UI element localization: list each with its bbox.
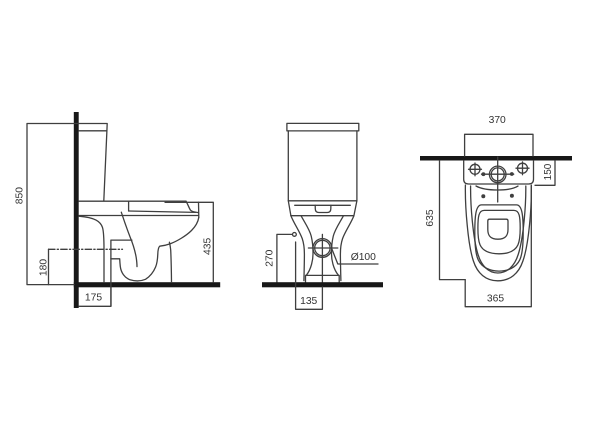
svg-text:270: 270 (265, 249, 276, 266)
svg-text:850: 850 (14, 187, 25, 204)
svg-text:150: 150 (543, 163, 554, 180)
svg-text:365: 365 (487, 294, 504, 305)
svg-text:175: 175 (85, 292, 102, 303)
svg-text:180: 180 (38, 259, 49, 276)
svg-text:135: 135 (300, 296, 317, 307)
svg-text:635: 635 (425, 209, 436, 226)
svg-text:435: 435 (202, 238, 213, 255)
svg-text:370: 370 (489, 115, 506, 126)
svg-text:Ø100: Ø100 (351, 252, 376, 263)
